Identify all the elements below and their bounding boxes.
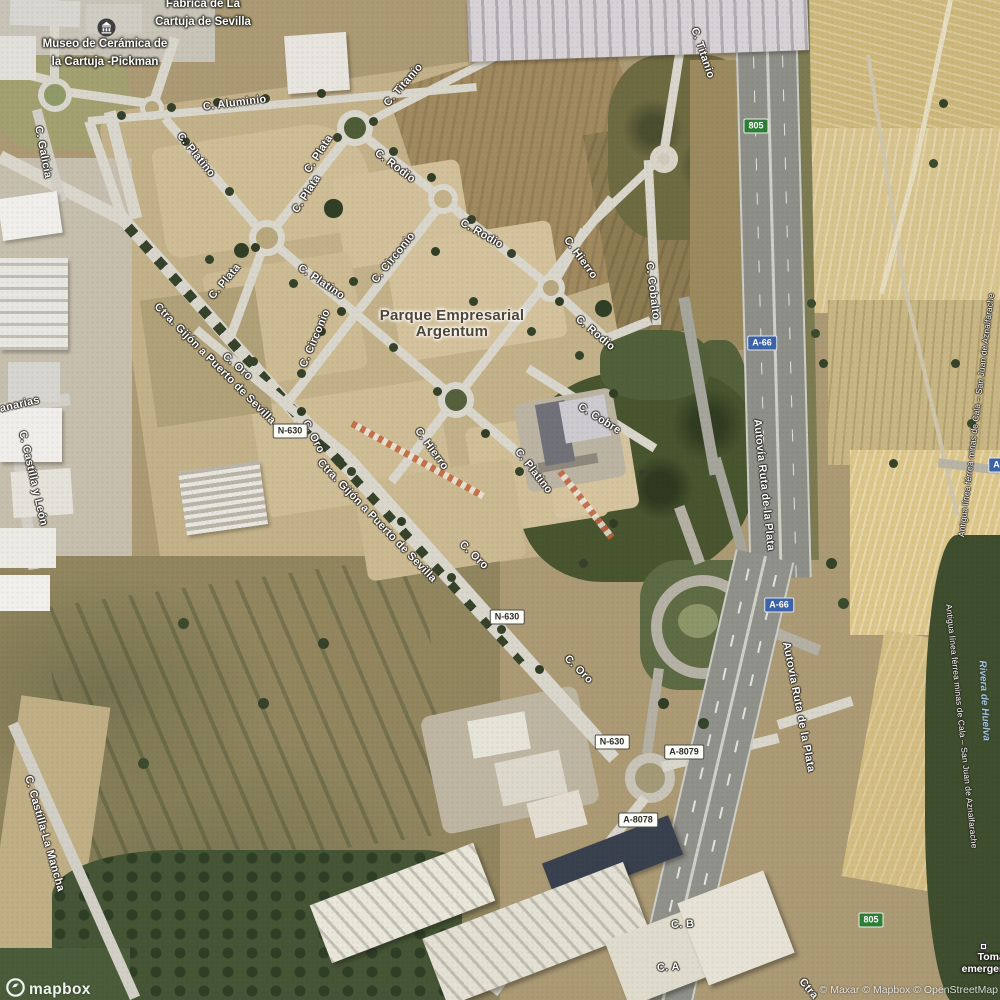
roundabout-plaza [650,145,678,173]
poi-label-line: Museo de Cerámica de [30,36,180,54]
street-label-oro: C. Oro [562,653,596,687]
roundabout [38,78,72,112]
emergency-poi-icon [979,942,988,951]
route-shield-a8079: A-8079 [664,745,704,760]
place-label-line: Argentum [380,324,525,340]
km-marker-805: 805 [743,119,768,134]
poi-label-line: emergencia [950,963,1000,975]
street-label-ctra: Ctra [796,976,820,1000]
poi-label-museum: Museo de Cerámica de la Cartuja -Pickman [30,36,180,72]
building [0,258,68,350]
km-marker-805: 805 [858,913,883,928]
map-canvas[interactable]: Fábrica de La Cartuja de Sevilla Museo d… [0,0,1000,1000]
route-shield-a8078: A-8078 [618,813,658,828]
map-attribution[interactable]: © Maxar © Mapbox © OpenStreetMap [820,984,998,996]
building [0,575,50,611]
mapbox-logo-icon [6,978,25,1000]
roundabout [537,274,565,302]
poi-label-line: Cartuja de Sevilla [133,14,273,32]
route-shield-a66: A-66 [747,336,777,351]
mapbox-logo[interactable]: mapbox [6,978,91,1000]
route-shield-partial: A- [988,458,1000,473]
poi-label-line: Toma de [950,951,1000,963]
route-shield-n630: N-630 [490,610,525,625]
poi-label-factory: Fábrica de La Cartuja de Sevilla [133,0,273,32]
mapbox-logo-text: mapbox [29,981,91,999]
route-shield-n630: N-630 [273,424,308,439]
route-shield-n630: N-630 [595,735,630,750]
poi-label-emergency: Toma de emergencia [950,951,1000,975]
building [0,191,63,241]
street-label-calle-b: C. B [671,918,695,931]
poi-label-line: la Cartuja -Pickman [30,54,180,72]
street-label-calle-a: C. A [657,961,680,974]
place-label-business-park: Parque Empresarial Argentum [380,308,525,340]
roundabout [428,184,458,214]
street-label-autovia: Autovía Ruta de la Plata [780,641,817,773]
poi-label-line: Fábrica de La [133,0,273,14]
building [0,528,56,568]
road-segment [776,696,853,730]
route-shield-a66: A-66 [764,598,794,613]
tree-dots [0,0,7,7]
greenhouse [178,461,268,536]
building-museum [284,32,350,94]
place-label-line: Parque Empresarial [380,308,525,324]
roundabout [249,220,285,256]
ramp [642,668,664,755]
roundabout [337,110,373,146]
roundabout [438,382,474,418]
building [10,0,81,27]
lane-marking [780,0,797,578]
loop-infield [678,604,718,638]
